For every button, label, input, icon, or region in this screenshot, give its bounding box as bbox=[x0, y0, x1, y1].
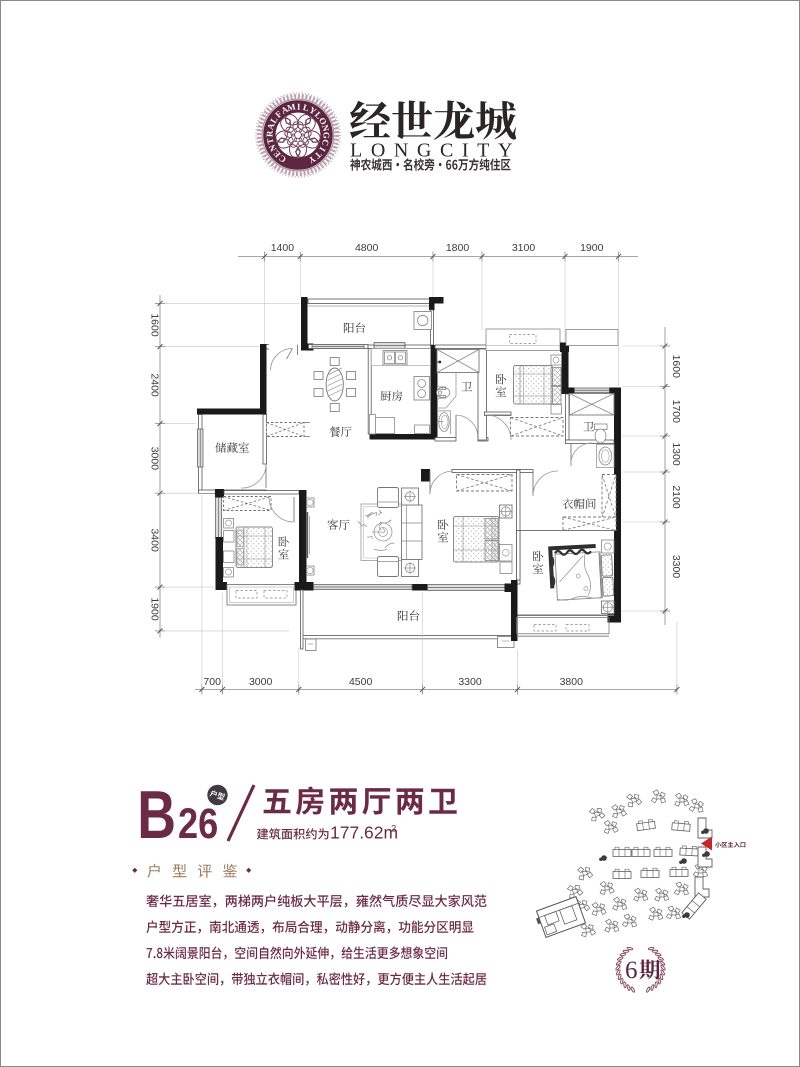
svg-text:4800: 4800 bbox=[355, 242, 379, 254]
svg-text:3800: 3800 bbox=[560, 676, 584, 688]
svg-text:2100: 2100 bbox=[670, 485, 682, 509]
svg-text:1900: 1900 bbox=[580, 242, 604, 254]
svg-text:3300: 3300 bbox=[458, 676, 482, 688]
svg-text:3300: 3300 bbox=[670, 555, 682, 579]
svg-text:1800: 1800 bbox=[446, 242, 470, 254]
svg-text:1600: 1600 bbox=[670, 355, 682, 379]
svg-text:1700: 1700 bbox=[670, 400, 682, 424]
svg-text:700: 700 bbox=[203, 676, 221, 688]
svg-text:26: 26 bbox=[178, 800, 218, 848]
svg-text:1400: 1400 bbox=[271, 242, 295, 254]
svg-text:4500: 4500 bbox=[349, 676, 373, 688]
svg-text:1300: 1300 bbox=[670, 442, 682, 466]
svg-text:3400: 3400 bbox=[149, 528, 161, 552]
svg-text:177.62m: 177.62m bbox=[330, 823, 398, 843]
svg-text:1900: 1900 bbox=[149, 597, 161, 621]
svg-text:1600: 1600 bbox=[149, 313, 161, 337]
svg-text:3000: 3000 bbox=[249, 676, 273, 688]
svg-text:3000: 3000 bbox=[149, 447, 161, 471]
svg-text:3100: 3100 bbox=[512, 242, 536, 254]
svg-text:2: 2 bbox=[391, 824, 396, 835]
svg-text:2400: 2400 bbox=[149, 373, 161, 397]
svg-text:6: 6 bbox=[625, 957, 638, 984]
svg-text:B: B bbox=[137, 777, 176, 852]
svg-text:LONGCITY: LONGCITY bbox=[350, 140, 521, 162]
